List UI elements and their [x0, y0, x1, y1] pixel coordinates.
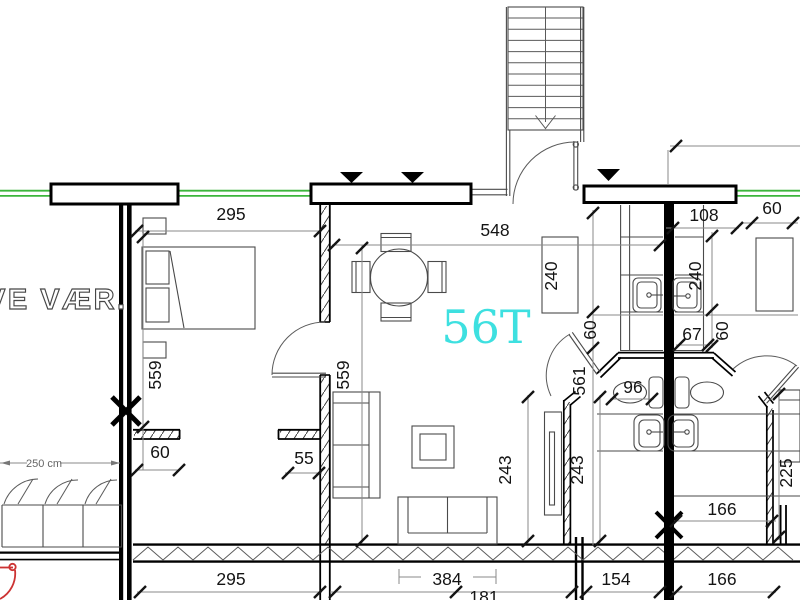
toilet-right [675, 377, 724, 408]
dim-cabinet-240: 240 [541, 261, 561, 290]
dim-bottom-181: 181 [469, 587, 498, 600]
window-sill [311, 184, 471, 204]
walls [0, 202, 800, 600]
sofa-horizontal [398, 497, 497, 544]
dim-bottom-295: 295 [216, 569, 245, 589]
entry-landing-walls [472, 189, 508, 195]
dim-right-240: 240 [685, 261, 705, 290]
dim-far-right-225: 225 [776, 458, 796, 487]
dim-top-right-60: 60 [762, 198, 782, 218]
window-sill [51, 184, 178, 204]
dim-center-55: 55 [294, 448, 313, 468]
neighbor-red-door [0, 564, 16, 599]
neighbor-bathroom-door [733, 356, 799, 403]
vent-triangle-icon [340, 172, 363, 183]
door-swing-arc [733, 356, 797, 369]
dim-left-243: 243 [495, 455, 515, 484]
room-name-label: VE VÆR. [0, 284, 128, 316]
dim-right-166-lower: 166 [707, 569, 736, 589]
exterior-window-walls [51, 169, 736, 204]
double-bed [142, 247, 255, 329]
coffee-table [412, 426, 454, 468]
vent-triangle-icon [401, 172, 424, 183]
dim-mid-561: 561 [569, 366, 589, 395]
vent-triangle-icon [597, 169, 620, 181]
dim-left-60: 60 [150, 442, 170, 462]
bedroom-door [272, 322, 326, 377]
window-sill [584, 186, 736, 203]
dim-center-559: 559 [333, 360, 353, 389]
door-swing-arc [272, 322, 325, 375]
arrow-left-icon [1, 461, 10, 466]
dim-right-67: 67 [682, 324, 701, 344]
unit-number-label: 56T [441, 300, 531, 354]
hall-cabinet [545, 412, 562, 515]
neighbor-wardrobe [756, 238, 793, 311]
closet-width-label: 250 cm [26, 458, 62, 470]
dim-top-548: 548 [480, 220, 509, 240]
entry-door [513, 141, 578, 204]
dim-bottom-384: 384 [432, 569, 461, 589]
dim-right-166-upper: 166 [707, 499, 736, 519]
dim-left-559: 559 [145, 360, 165, 389]
arrow-right-icon [111, 461, 120, 466]
door-swing-arc [0, 570, 15, 599]
floor-plan: 295 548 108 60 240 240 67 60 60 561 96 5… [0, 0, 800, 600]
dim-wc-96: 96 [623, 377, 642, 397]
left-neighbor-closet [2, 479, 122, 547]
door-swing-arc [513, 142, 575, 204]
dining-table-set [352, 234, 446, 322]
door-swing-arc [546, 334, 570, 396]
kitchen-sink-left [633, 278, 663, 312]
dim-right-60: 60 [712, 321, 732, 341]
washbasin-left [634, 415, 664, 451]
nightstand [143, 342, 166, 358]
staircase [506, 7, 583, 196]
dim-top-295: 295 [216, 204, 245, 224]
dim-mid-60: 60 [580, 320, 600, 340]
nightstand [143, 218, 166, 234]
wall-hatch-zigzag [133, 547, 793, 560]
dim-top-108: 108 [689, 205, 718, 225]
dim-bottom-154: 154 [601, 569, 630, 589]
sofa-vertical [333, 392, 380, 498]
dim-right-243: 243 [567, 455, 587, 484]
